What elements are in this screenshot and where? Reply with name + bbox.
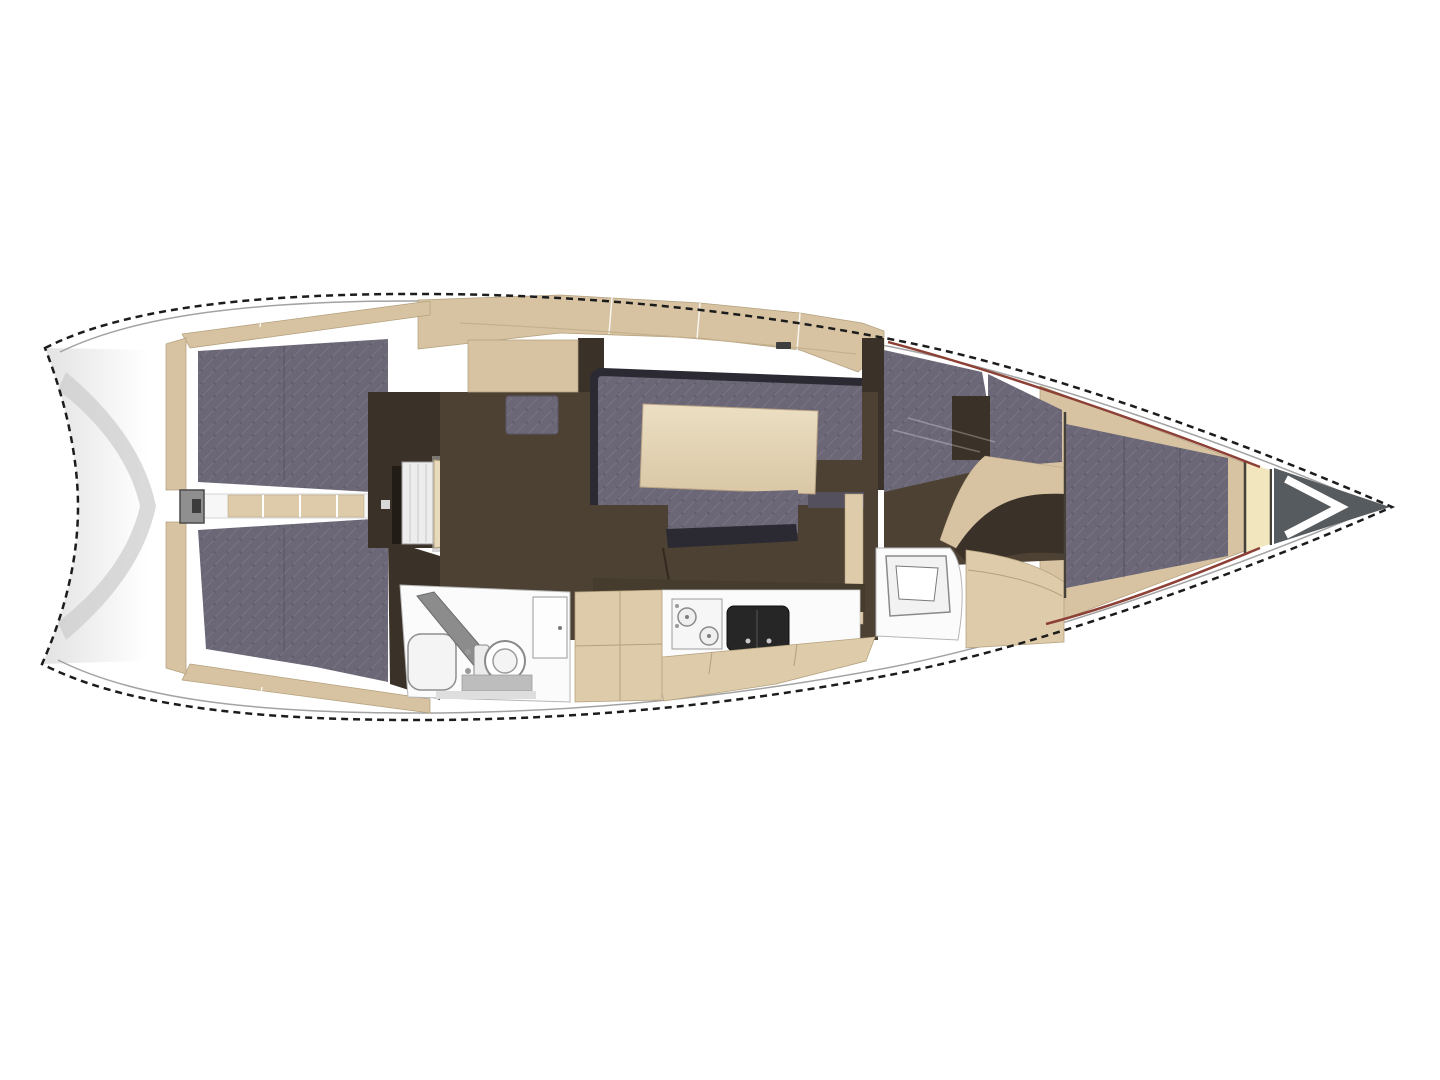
shower-tray — [408, 634, 456, 690]
stove-knob-2 — [675, 624, 679, 628]
transom-seat-starboard — [166, 522, 186, 674]
nav-station-seat — [506, 396, 558, 434]
sink-faucet-1 — [746, 639, 751, 644]
cockpit-walkway-planks — [228, 495, 364, 517]
companionway-latch — [381, 500, 390, 509]
sink-faucet-2 — [767, 639, 772, 644]
stove-burner-1-center — [685, 615, 689, 619]
toilet-bowl-inner — [493, 649, 517, 673]
deck-latch — [776, 342, 791, 349]
washbasin — [896, 566, 938, 601]
saloon-table — [640, 404, 818, 494]
nav-station-desk — [468, 340, 578, 392]
boat-floorplan — [0, 0, 1440, 1080]
head-step — [462, 675, 532, 691]
door-knob — [558, 626, 562, 630]
boat-floorplan-image — [0, 0, 1440, 1080]
transom-gate-latch — [192, 499, 201, 513]
stove-knob-1 — [675, 604, 679, 608]
companionway-opening — [392, 466, 402, 544]
head-threshold — [436, 691, 536, 699]
transom-seat-port — [166, 338, 186, 490]
head-fitting-1 — [465, 649, 471, 655]
bow-shelf — [1246, 462, 1270, 552]
cockpit-bench-port — [198, 339, 388, 493]
stove-burner-2-center — [707, 634, 711, 638]
head-fitting-2 — [465, 668, 471, 674]
